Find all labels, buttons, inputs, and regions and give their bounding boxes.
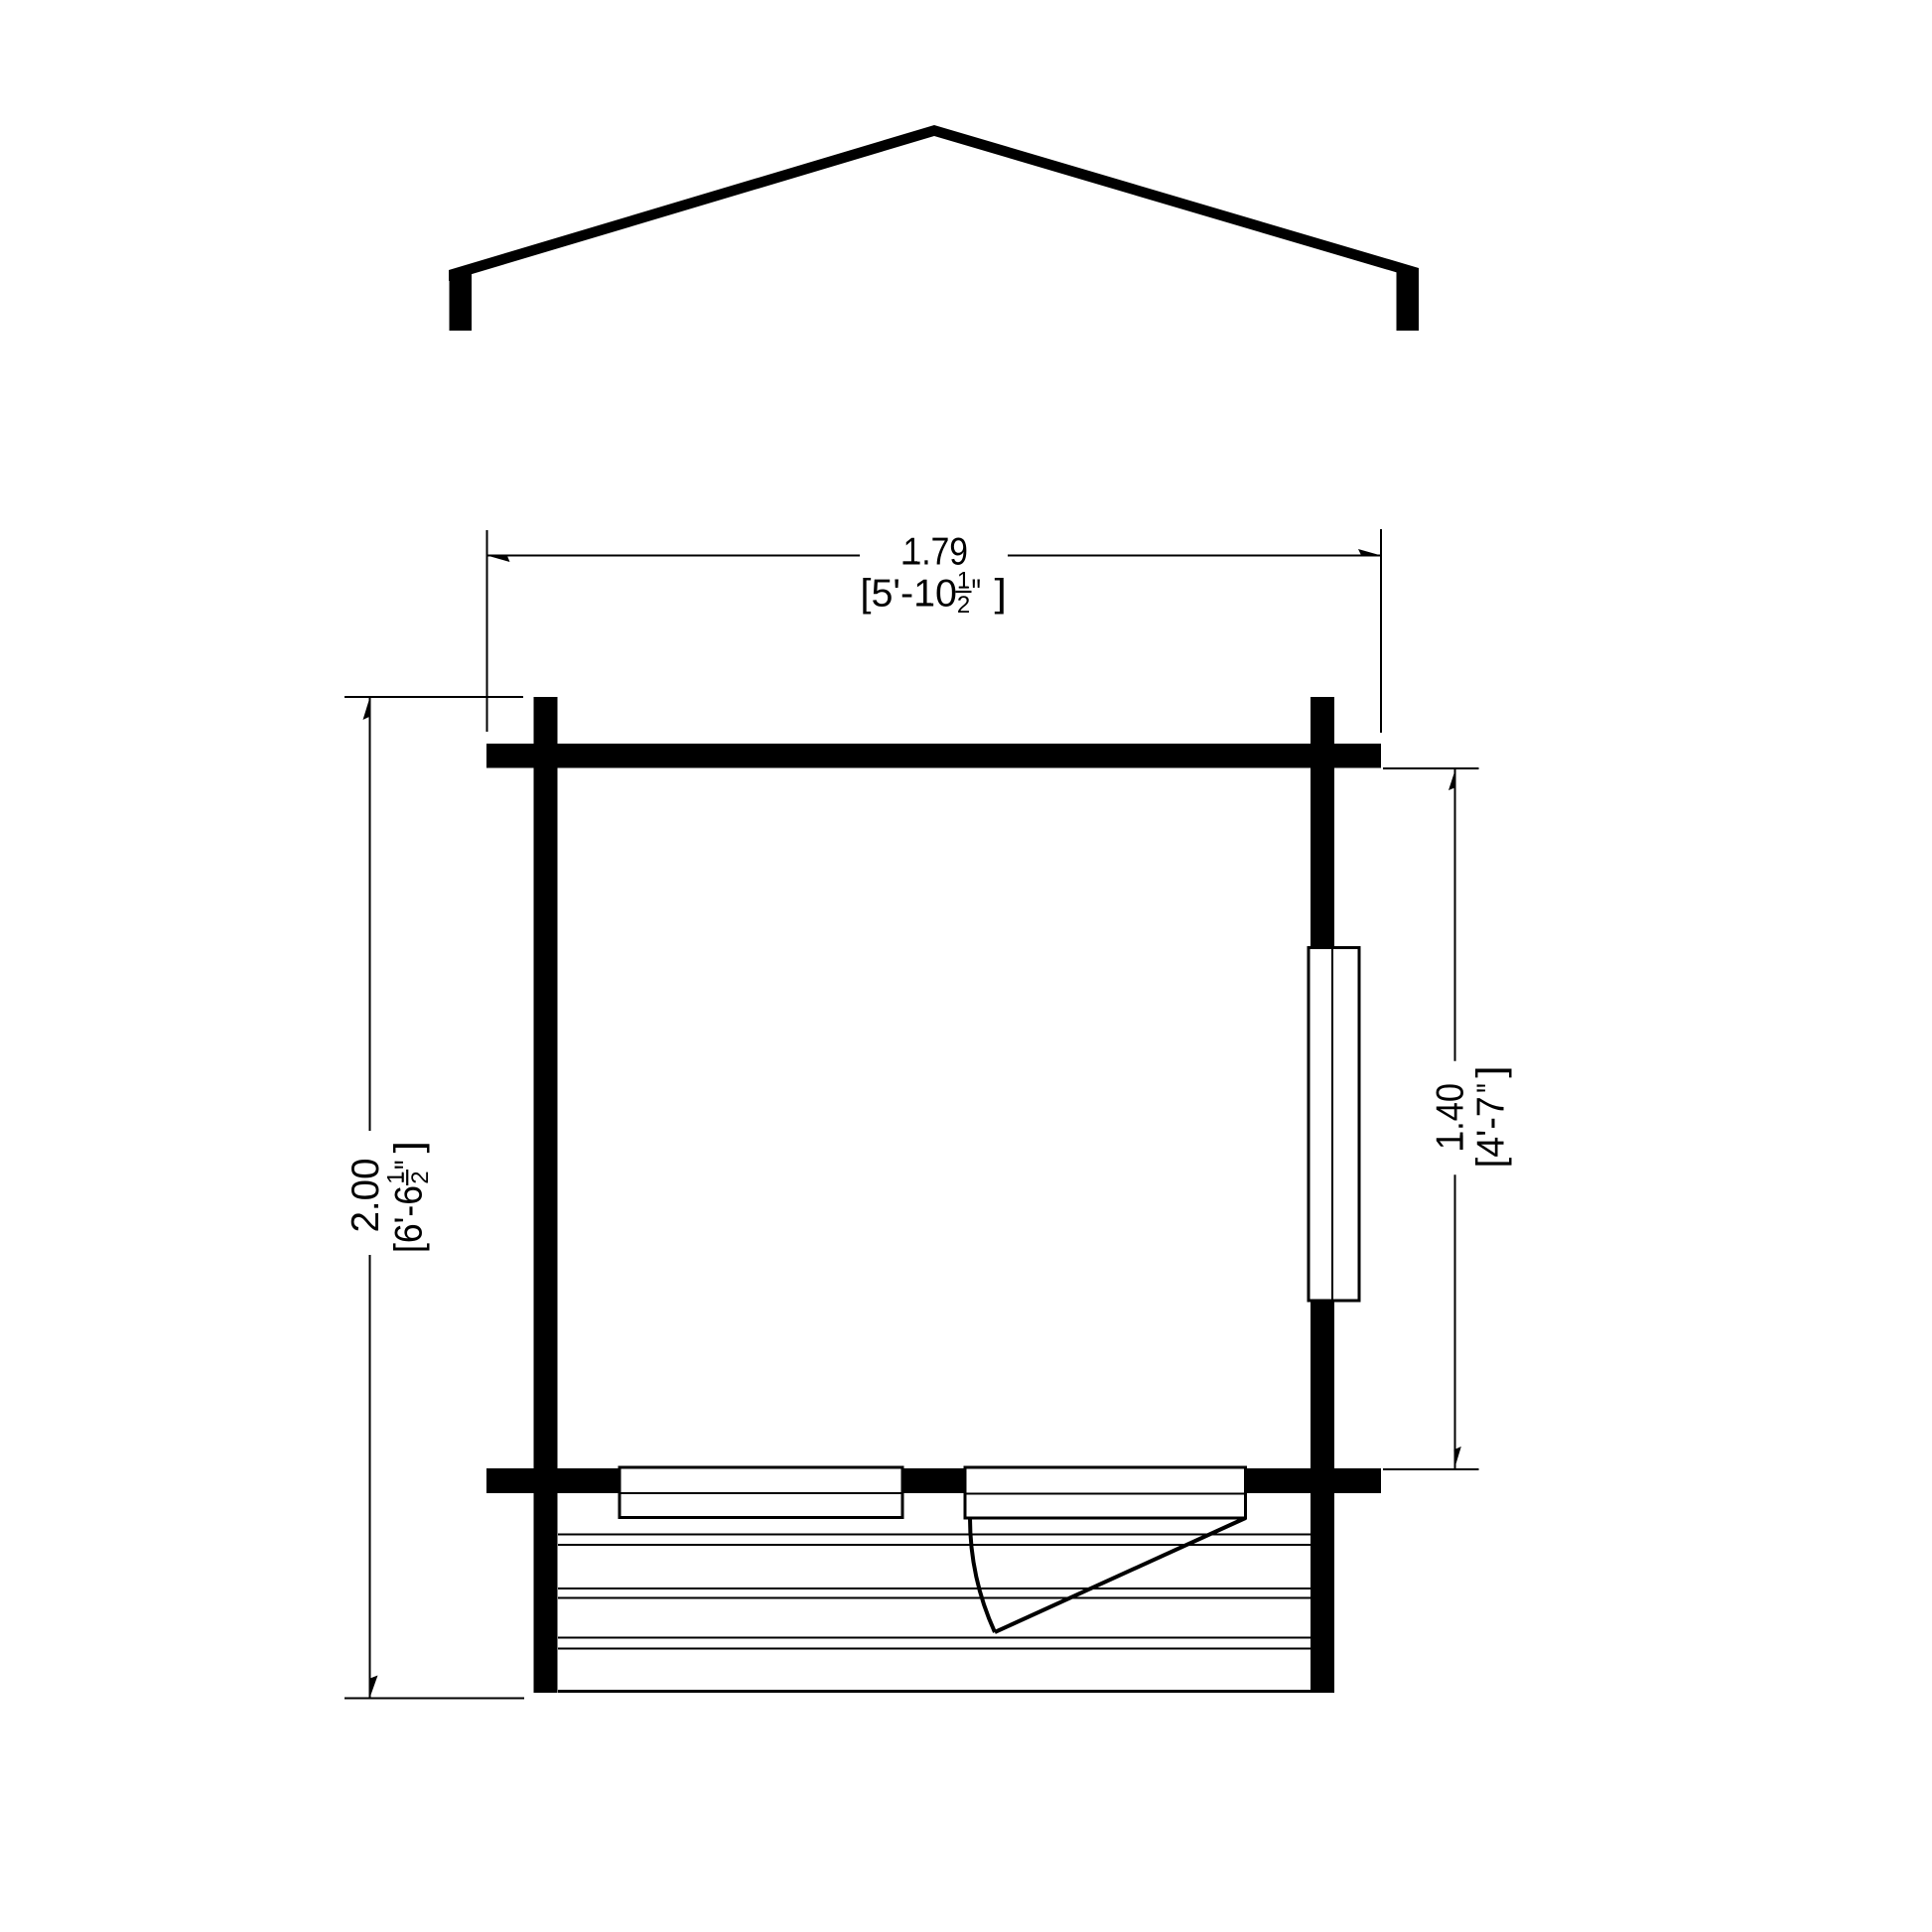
svg-text:": " xyxy=(972,573,982,616)
svg-text:2: 2 xyxy=(407,1171,434,1183)
svg-text:1.40: 1.40 xyxy=(1430,1083,1472,1150)
svg-text:2.00: 2.00 xyxy=(345,1159,387,1233)
svg-text:]: ] xyxy=(995,573,1008,616)
svg-text:2: 2 xyxy=(957,592,970,619)
svg-text:": " xyxy=(1470,1083,1513,1093)
svg-text:]: ] xyxy=(1470,1065,1513,1078)
svg-text:[5'-10: [5'-10 xyxy=(861,573,958,616)
svg-text:1: 1 xyxy=(957,568,970,595)
svg-text:1: 1 xyxy=(383,1171,410,1183)
svg-text:]: ] xyxy=(388,1141,431,1154)
svg-text:": " xyxy=(388,1161,431,1171)
svg-text:[4'-7: [4'-7 xyxy=(1470,1096,1513,1168)
svg-text:[6'-6: [6'-6 xyxy=(388,1185,431,1253)
